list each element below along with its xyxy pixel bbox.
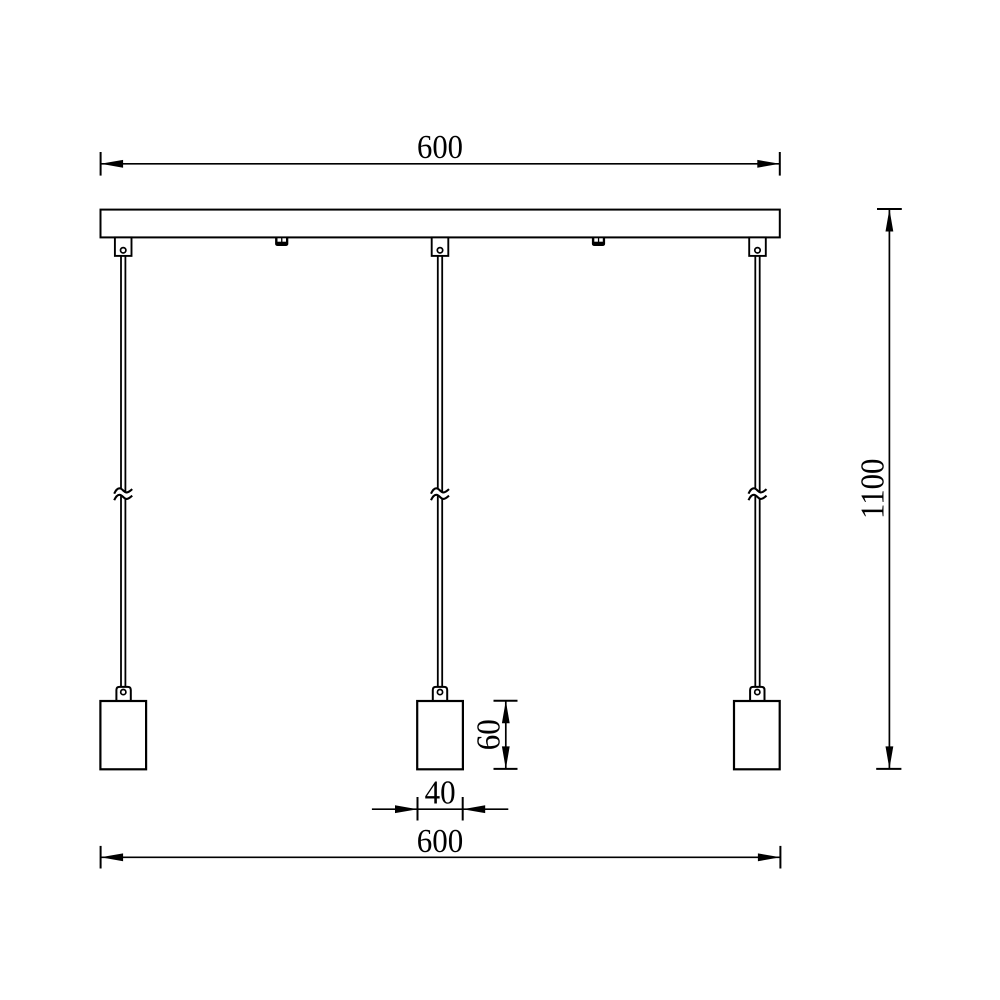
svg-text:60: 60 — [470, 719, 507, 750]
svg-text:600: 600 — [417, 129, 463, 166]
svg-text:1100: 1100 — [855, 459, 892, 520]
svg-text:40: 40 — [425, 775, 456, 812]
svg-text:600: 600 — [417, 823, 464, 860]
